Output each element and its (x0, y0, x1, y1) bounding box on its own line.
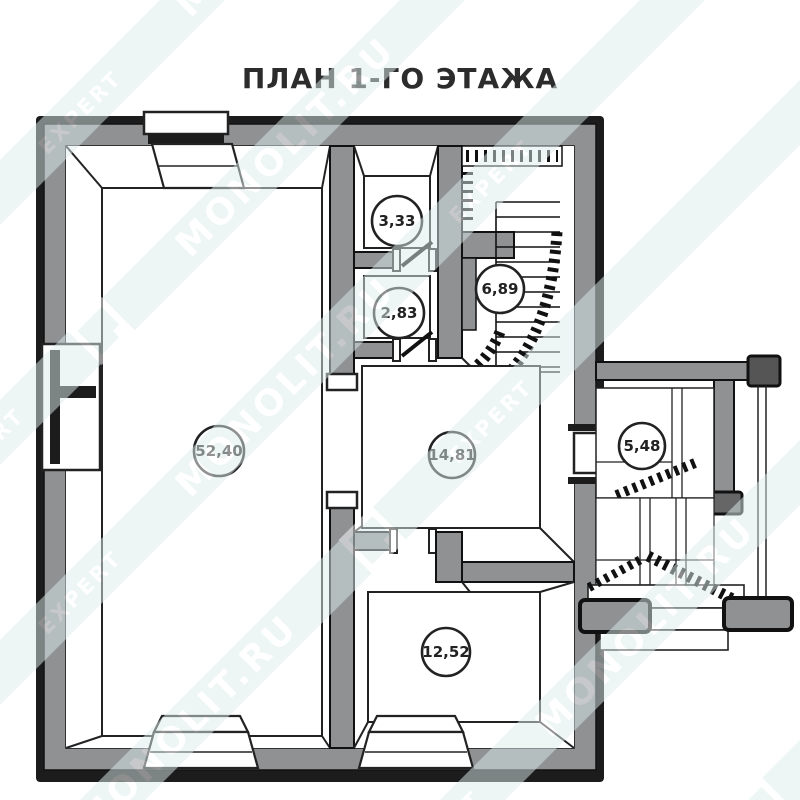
room-label-mid-small: 2,83 (374, 288, 424, 338)
interior-wall-d (438, 146, 462, 358)
porch (580, 356, 792, 650)
stair-wall-stub (462, 258, 476, 330)
svg-text:14,81: 14,81 (428, 446, 475, 464)
room-label-stair-hall: 6,89 (476, 265, 524, 313)
door-jamb (327, 374, 357, 390)
steps-rail-cap-left (580, 600, 650, 632)
door-jamb (327, 492, 357, 508)
porch-canopy-beam (596, 362, 756, 380)
window-left (42, 344, 100, 470)
floor-plan-page: ПЛАН 1-ГО ЭТАЖА (0, 0, 800, 800)
room-label-hallway: 14,81 (428, 432, 475, 478)
steps-rail-cap-right (724, 598, 792, 630)
svg-text:6,89: 6,89 (481, 280, 518, 298)
door-jamb (429, 249, 436, 271)
door-jamb (390, 529, 397, 553)
window-bottom-right (359, 716, 473, 768)
room-label-top-small: 3,33 (372, 196, 422, 246)
floor-plan-drawing: 52,40 3,33 2,83 6,89 14,81 5,48 (0, 0, 800, 800)
svg-text:3,33: 3,33 (378, 212, 415, 230)
svg-text:5,48: 5,48 (623, 437, 660, 455)
room-label-porch: 5,48 (619, 423, 665, 469)
stair-landing (462, 232, 514, 258)
room-label-bottom-right: 12,52 (422, 628, 470, 676)
door-jamb (393, 249, 400, 271)
page-title: ПЛАН 1-ГО ЭТАЖА (0, 62, 800, 95)
window-bottom-left (144, 716, 258, 768)
porch-support-lines (758, 386, 766, 596)
door-jamb (429, 529, 436, 553)
porch-post (714, 380, 734, 500)
porch-beam-cap (748, 356, 780, 386)
svg-text:2,83: 2,83 (380, 304, 417, 322)
door-jamb (429, 339, 436, 361)
svg-text:12,52: 12,52 (422, 643, 469, 661)
svg-text:52,40: 52,40 (195, 442, 242, 460)
door-jamb (393, 339, 400, 361)
room-label-living: 52,40 (194, 426, 244, 476)
